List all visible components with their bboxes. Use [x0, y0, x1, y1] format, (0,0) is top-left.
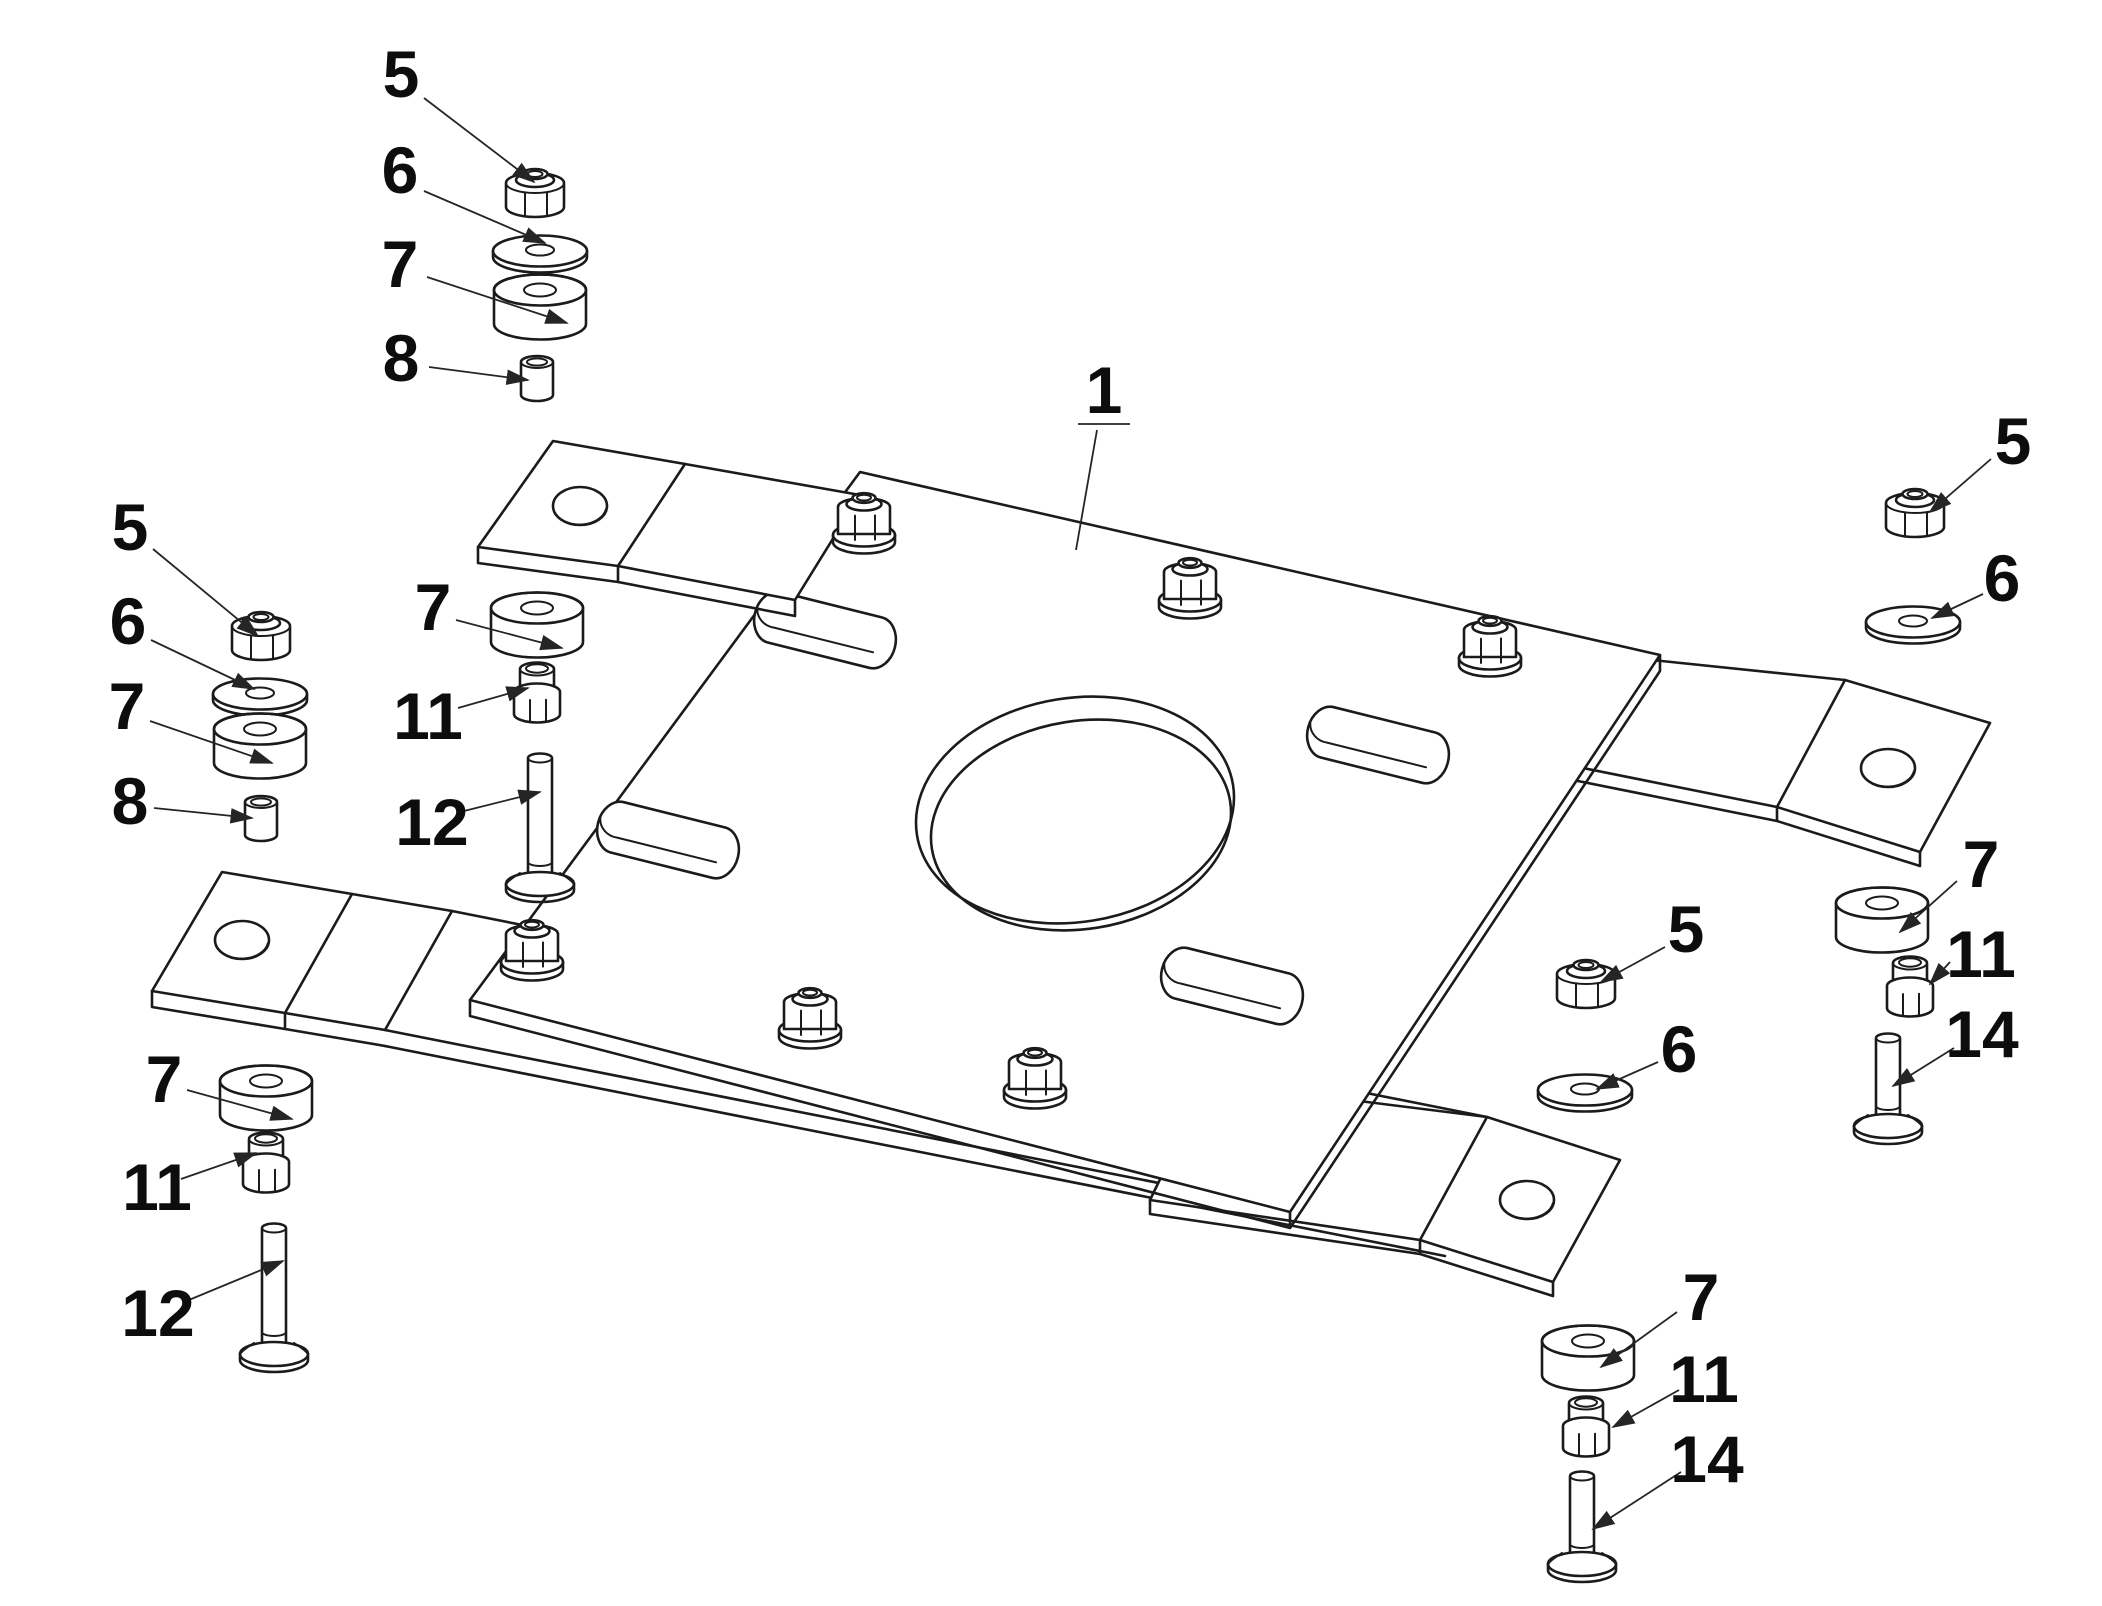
flangenut-11-bottom-left — [243, 1133, 289, 1193]
callout-label-flange-nut-17: 11 — [1946, 917, 2016, 991]
callout-label-sleeve-8: 8 — [112, 764, 149, 838]
bolt-14-right — [1854, 1034, 1922, 1145]
callout-label-lock-nut-14: 5 — [1668, 892, 1705, 966]
callout-label-spacer-3: 7 — [382, 227, 419, 301]
leader-line-sleeve-4 — [429, 367, 528, 380]
callout-label-lock-nut-1: 5 — [383, 37, 420, 111]
leader-line-lock-nut-12 — [1930, 459, 1991, 512]
callout-label-flange-nut-10: 11 — [393, 679, 463, 753]
flangenut-11-bottom-right — [1563, 1397, 1609, 1457]
plate-nut-top-2 — [1159, 558, 1221, 618]
leader-line-lock-nut-14 — [1601, 947, 1665, 982]
leader-line-lock-nut-5 — [153, 549, 258, 636]
spacer-7-top-left — [494, 275, 586, 340]
callout-label-washer-2: 6 — [382, 133, 419, 207]
callout-label-short-bolt-24: 14 — [1670, 1422, 1744, 1496]
callout-label-flange-nut-23: 11 — [1669, 1342, 1739, 1416]
callout-label-lock-nut-12: 5 — [1995, 404, 2032, 478]
upper-cross-strap-left — [478, 441, 860, 616]
callout-label-long-bolt-11: 12 — [395, 785, 468, 859]
leader-line-lock-nut-1 — [424, 98, 534, 182]
plate-nut-top-1 — [833, 493, 895, 553]
callout-label-washer-15: 6 — [1661, 1012, 1698, 1086]
exploded-assembly-page: 156785678711125656711147111271114 — [0, 0, 2102, 1606]
callout-label-spacer-16: 7 — [1963, 827, 2000, 901]
callout-label-washer-13: 6 — [1984, 541, 2021, 615]
bolt-12-mid-left — [506, 754, 574, 903]
locknut-5-center — [1557, 960, 1615, 1008]
lower-strap-left-tab — [152, 872, 452, 1046]
leader-line-washer-13 — [1932, 594, 1983, 618]
callout-label-spacer-22: 7 — [1683, 1260, 1720, 1334]
leader-line-short-bolt-24 — [1593, 1472, 1681, 1529]
callout-label-short-bolt-18: 14 — [1945, 997, 2019, 1071]
callout-label-spacer-7: 7 — [109, 669, 146, 743]
leader-line-sleeve-8 — [154, 808, 252, 818]
callout-label-spacer-9: 7 — [415, 570, 452, 644]
spacer-7-left — [214, 714, 306, 779]
plate-nut-top-3 — [1459, 616, 1521, 676]
callout-label-lock-nut-5: 5 — [112, 490, 149, 564]
sleeve-8-top-left — [521, 356, 553, 401]
bolt-12-bottom-left — [240, 1224, 308, 1373]
callout-label-long-bolt-21: 12 — [121, 1276, 194, 1350]
callout-label-flange-nut-20: 11 — [122, 1150, 192, 1224]
bolt-14-bottom-right — [1548, 1472, 1616, 1583]
plate-nut-bottom-1 — [779, 988, 841, 1048]
plate-nut-west — [501, 920, 563, 980]
locknut-5-top-left — [506, 169, 564, 217]
spacer-7-mid-left — [491, 593, 583, 658]
callout-label-sleeve-4: 8 — [383, 321, 420, 395]
exploded-assembly-diagram: 156785678711125656711147111271114 — [0, 0, 2102, 1606]
callout-label-mounting-plate-0: 1 — [1086, 353, 1123, 427]
callout-label-spacer-19: 7 — [146, 1042, 183, 1116]
locknut-5-right — [1886, 489, 1944, 537]
washer-6-left — [213, 679, 307, 716]
spacer-7-bottom-right — [1542, 1326, 1634, 1391]
callout-label-washer-6: 6 — [110, 584, 147, 658]
locknut-5-left — [232, 612, 290, 660]
plate-nut-bottom-2 — [1004, 1048, 1066, 1108]
spacer-7-bottom-left — [220, 1066, 312, 1131]
flangenut-11-right — [1887, 957, 1933, 1017]
flangenut-11-mid-left — [514, 663, 560, 723]
